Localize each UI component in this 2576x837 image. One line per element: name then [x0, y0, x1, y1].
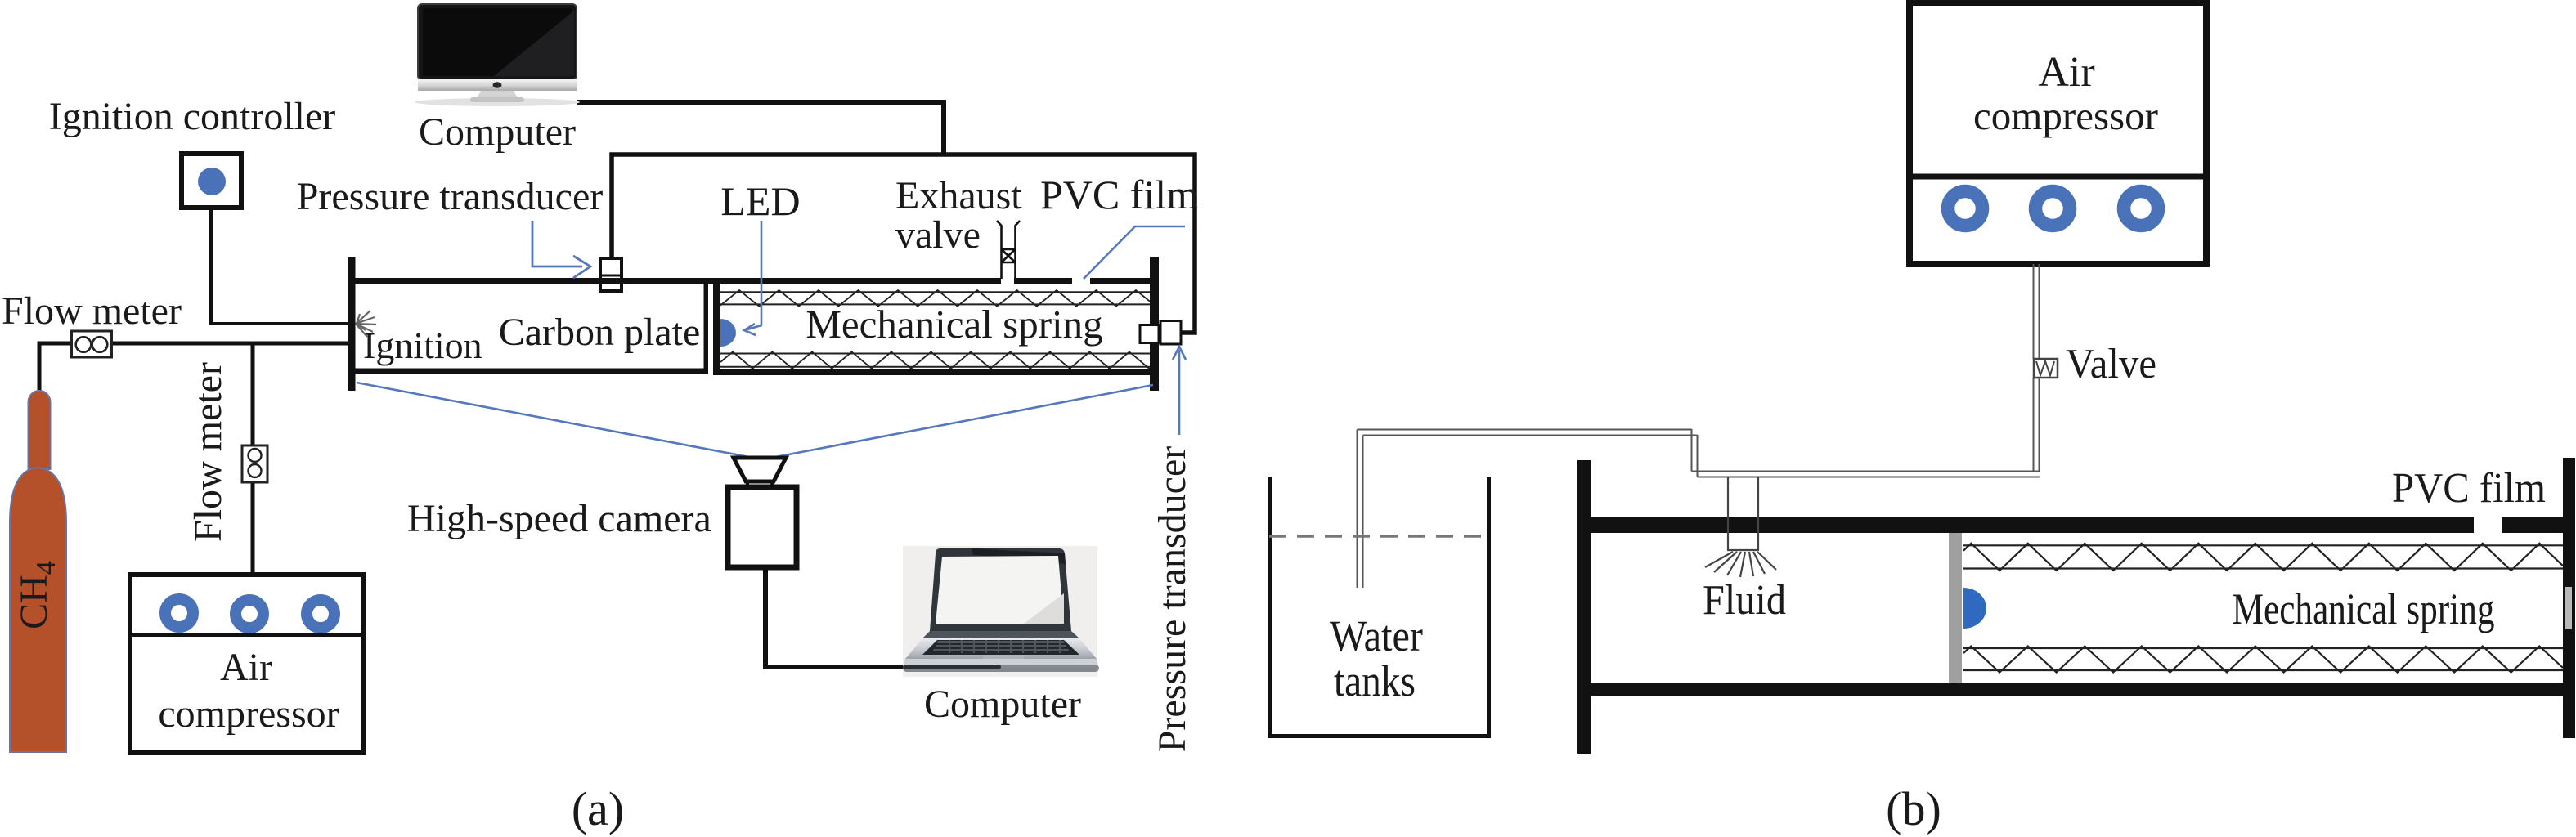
svg-text:Valve: Valve [2066, 341, 2156, 387]
svg-text:Air: Air [220, 646, 272, 689]
svg-text:Flow meter: Flow meter [186, 362, 230, 542]
svg-text:Pressure transducer: Pressure transducer [297, 175, 604, 218]
svg-text:Ignition controller: Ignition controller [49, 95, 336, 138]
svg-text:PVC film: PVC film [1040, 172, 1198, 217]
svg-text:Fluid: Fluid [1703, 577, 1786, 624]
svg-text:(a): (a) [572, 782, 624, 835]
svg-text:Mechanical spring: Mechanical spring [806, 302, 1102, 347]
svg-text:PVC film: PVC film [2392, 465, 2546, 512]
svg-text:Pressure transducer: Pressure transducer [1151, 446, 1194, 753]
svg-text:Computer: Computer [419, 110, 576, 154]
svg-text:Water: Water [1330, 611, 1423, 660]
svg-text:Computer: Computer [924, 683, 1081, 726]
svg-text:High-speed camera: High-speed camera [407, 497, 711, 540]
svg-text:Mechanical spring: Mechanical spring [2233, 584, 2495, 633]
svg-text:Ignition: Ignition [363, 325, 482, 366]
svg-text:Carbon plate: Carbon plate [499, 311, 701, 354]
svg-text:Exhaust: Exhaust [895, 174, 1022, 217]
svg-text:compressor: compressor [1973, 93, 2158, 138]
svg-text:tanks: tanks [1334, 656, 1416, 705]
svg-text:valve: valve [895, 213, 981, 257]
svg-text:LED: LED [720, 178, 800, 224]
svg-text:compressor: compressor [158, 692, 339, 736]
svg-text:Flow meter: Flow meter [2, 289, 182, 333]
svg-text:Air: Air [2038, 49, 2094, 96]
svg-text:(b): (b) [1886, 782, 1941, 835]
